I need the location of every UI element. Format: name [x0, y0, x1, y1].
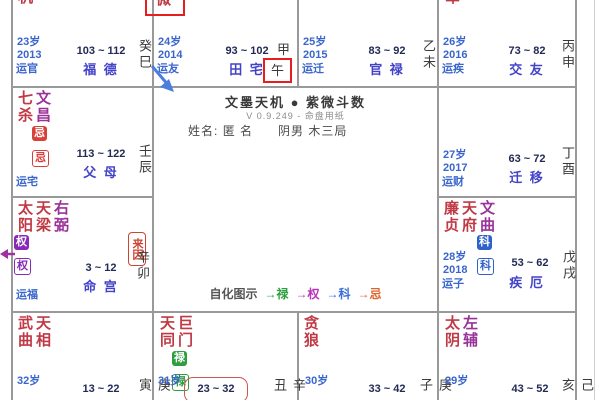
self-transformation-legend: 自化图示 →禄 →权 →科 →忌: [154, 285, 437, 302]
palace-cell-fumu[interactable]: 七杀 文昌 忌 忌 113 ~ 122 父 母 运宅 壬辰: [11, 86, 152, 196]
name-value: 匿 名: [223, 124, 253, 138]
star-tiantong: 天同: [158, 315, 174, 349]
page-edge-line: [594, 0, 595, 400]
year-label: 2013: [17, 49, 41, 61]
year-label: 2014: [158, 49, 182, 61]
palace-cell-guanlu[interactable]: 25岁 2015 运迁 83 ~ 92 官 禄 乙未: [297, 0, 437, 86]
legend-quan: →权: [295, 285, 319, 302]
age-label: 30岁: [305, 375, 328, 387]
branch-highlight-box: 午: [263, 58, 292, 83]
legend-label: 自化图示: [209, 285, 257, 302]
year-label: 2015: [303, 49, 327, 61]
palace-name: 父 母: [56, 162, 146, 181]
hua-quan-badge: 权: [14, 235, 29, 250]
stem-branch: 乙未: [419, 39, 438, 71]
palace-name: 福 德: [56, 59, 146, 78]
star-group: 武曲 天相: [16, 315, 50, 349]
palace-cell-ming[interactable]: 太阳 天梁 右弼 权 权 来因 3 ~ 12 命 宫 运福 辛卯: [11, 196, 152, 311]
palace-cell-fude[interactable]: 天机 23岁 2013 运官 103 ~ 112 福 德 癸巳: [11, 0, 152, 86]
legend-ji: →忌: [358, 285, 382, 302]
hua-ji-badge: 忌: [32, 126, 47, 141]
star-tianxiang: 天相: [34, 315, 50, 349]
name-label: 姓名:: [188, 124, 218, 138]
palace-cell-chou[interactable]: 天同 巨门 禄 禄 31岁 23 ~ 32 辛丑: [152, 311, 297, 400]
legend-ke: →科: [327, 285, 351, 302]
star-ziwei: 紫微: [154, 0, 170, 8]
ziwei-chart: 天机 23岁 2013 运官 103 ~ 112 福 德 癸巳 紫微 24岁 2…: [0, 0, 600, 400]
decade-palace-label: 运官: [16, 63, 38, 75]
self-hua-ji-badge: 忌: [32, 150, 49, 167]
palace-cell-jiaoyou[interactable]: 破军 26岁 2016 运疾 73 ~ 82 交 友 丙申: [437, 0, 577, 86]
palace-cell-jie[interactable]: 廉贞 天府 文曲 科 科 28岁 2018 运子 53 ~ 62 疾 厄 戊戌: [437, 196, 577, 311]
year-label: 2016: [443, 49, 467, 61]
purple-left-arrow-icon: [0, 246, 16, 262]
profile-info: 阴男 木三局: [278, 122, 347, 139]
self-hua-quan-badge: 权: [14, 258, 31, 275]
star-tianliang: 天梁: [34, 200, 50, 234]
decade-palace-label: 运疾: [442, 63, 464, 75]
hua-ke-badge: 科: [477, 235, 492, 250]
palace-cell-hai[interactable]: 太阴 左辅 29岁 43 ~ 52 己亥: [437, 311, 577, 400]
current-decade-box: 23 ~ 32: [184, 377, 248, 400]
legend-lu: →禄: [264, 285, 288, 302]
age-range: 113 ~ 122: [56, 148, 146, 160]
decade-palace-label: 运迁: [302, 63, 324, 75]
star-taiyin: 太阴: [443, 315, 459, 349]
year-label: 2017: [443, 162, 467, 174]
app-version: V 0.9.249 - 命盘用纸: [154, 109, 437, 122]
star-group: 七杀 文昌: [16, 90, 50, 124]
star-youbi: 右弼: [52, 200, 68, 234]
stem-branch: 丁酉: [558, 146, 577, 178]
palace-cell-qianyi[interactable]: 27岁 2017 运财 63 ~ 72 迁 移 丁酉: [437, 86, 577, 196]
year-label: 2018: [443, 264, 467, 276]
star-group: 廉贞 天府 文曲: [442, 200, 494, 234]
decade-palace-label: 运子: [442, 278, 464, 290]
star-lianzhen: 廉贞: [442, 200, 458, 234]
star-group: 太阴 左辅: [443, 315, 477, 349]
star-tanlang: 贪狼: [302, 315, 318, 349]
palace-cell-yin[interactable]: 武曲 天相 32岁 13 ~ 22 庚寅: [11, 311, 152, 400]
age-label: 27岁: [443, 149, 466, 161]
star-qisha: 七杀: [16, 90, 32, 124]
star-jumen: 巨门: [176, 315, 192, 349]
star-wenqu: 文曲: [478, 200, 494, 234]
stem: 甲: [277, 40, 293, 59]
star-wuqu: 武曲: [16, 315, 32, 349]
star-group: 天同 巨门: [158, 315, 192, 349]
age-label: 29岁: [445, 375, 468, 387]
age-label: 28岁: [443, 251, 466, 263]
stem-branch: 壬辰: [135, 144, 154, 176]
age-range: 23 ~ 32: [185, 378, 247, 400]
age-range: 103 ~ 112: [56, 45, 146, 57]
star-group: 太阳 天梁 右弼: [16, 200, 68, 234]
age-label: 31岁: [158, 375, 181, 387]
star-zuofu: 左辅: [461, 315, 477, 349]
age-label: 25岁: [303, 36, 326, 48]
palace-cell-zi[interactable]: 贪狼 30岁 33 ~ 42 庚子: [297, 311, 437, 400]
age-label: 26岁: [443, 36, 466, 48]
stem-branch: 丙申: [558, 39, 577, 71]
star-group: 贪狼: [302, 315, 318, 349]
stem-branch: 己亥: [558, 378, 596, 400]
blue-flying-arrow-icon: [148, 62, 180, 98]
age-range: 13 ~ 22: [56, 383, 146, 395]
hua-lu-badge: 禄: [172, 351, 187, 366]
star-taiyang: 太阳: [16, 200, 32, 234]
decade-palace-label: 运财: [442, 176, 464, 188]
star-wenchang: 文昌: [34, 90, 50, 124]
star-pojun: 破军: [443, 0, 459, 6]
stem-branch: 辛卯: [133, 250, 152, 282]
decade-palace-label: 运福: [16, 289, 38, 301]
stem-branch: 戊戌: [559, 250, 578, 282]
age-label: 23岁: [17, 36, 40, 48]
name-row: 姓名: 匿 名: [188, 122, 253, 139]
center-panel: 文墨天机 ● 紫微斗数 V 0.9.249 - 命盘用纸 姓名: 匿 名 阴男 …: [154, 88, 437, 311]
age-label: 24岁: [158, 36, 181, 48]
star-tianji: 天机: [16, 0, 32, 6]
age-label: 32岁: [17, 375, 40, 387]
star-tianfu: 天府: [460, 200, 476, 234]
decade-palace-label: 运宅: [16, 176, 38, 188]
